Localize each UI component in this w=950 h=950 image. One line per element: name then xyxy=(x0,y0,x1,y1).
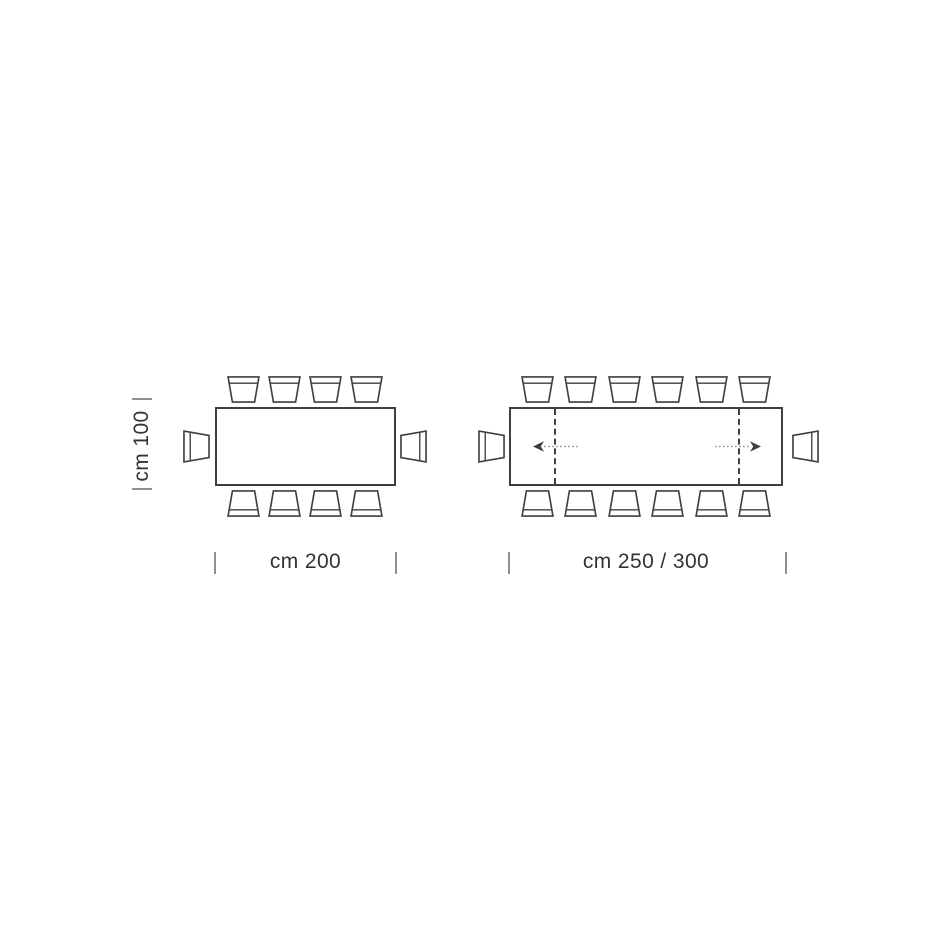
end-chair-right xyxy=(397,433,430,460)
chair-icon xyxy=(695,376,728,403)
chair-icon xyxy=(651,490,684,517)
chair-icon xyxy=(309,490,342,517)
chair-icon xyxy=(521,376,554,403)
chair-icon xyxy=(183,430,210,463)
width-dim-tick-right xyxy=(785,552,787,574)
chair-icon xyxy=(521,490,554,517)
width-dimension-label: cm 200 xyxy=(215,550,396,574)
width-dimension-label: cm 250 / 300 xyxy=(509,550,783,574)
chair-row-top xyxy=(227,376,383,403)
end-chair-left xyxy=(180,433,213,460)
chair-icon xyxy=(350,376,383,403)
height-dimension-label: cm 100 xyxy=(130,410,154,481)
extension-arrow-right-icon xyxy=(714,440,762,453)
chair-icon xyxy=(400,430,427,463)
chair-row-bottom xyxy=(227,490,383,517)
chair-icon xyxy=(608,490,641,517)
chair-icon xyxy=(738,376,771,403)
chair-icon xyxy=(309,376,342,403)
chair-icon xyxy=(268,490,301,517)
chair-icon xyxy=(227,490,260,517)
chair-row-top xyxy=(521,376,771,403)
chair-icon xyxy=(350,490,383,517)
chair-icon xyxy=(792,430,819,463)
end-chair-left xyxy=(475,433,508,460)
chair-icon xyxy=(564,376,597,403)
chair-icon xyxy=(227,376,260,403)
chair-icon xyxy=(268,376,301,403)
chair-row-bottom xyxy=(521,490,771,517)
table-top-view xyxy=(215,407,396,486)
chair-icon xyxy=(695,490,728,517)
width-dim-tick-right xyxy=(395,552,397,574)
table-dimensions-diagram: cm 100 cm 200 xyxy=(0,0,950,950)
chair-icon xyxy=(478,430,505,463)
height-dim-tick-top xyxy=(132,398,152,400)
height-dim-tick-bottom xyxy=(132,488,152,490)
chair-icon xyxy=(738,490,771,517)
chair-icon xyxy=(608,376,641,403)
extension-arrow-left-icon xyxy=(532,440,580,453)
chair-icon xyxy=(651,376,684,403)
end-chair-right xyxy=(789,433,822,460)
chair-icon xyxy=(564,490,597,517)
